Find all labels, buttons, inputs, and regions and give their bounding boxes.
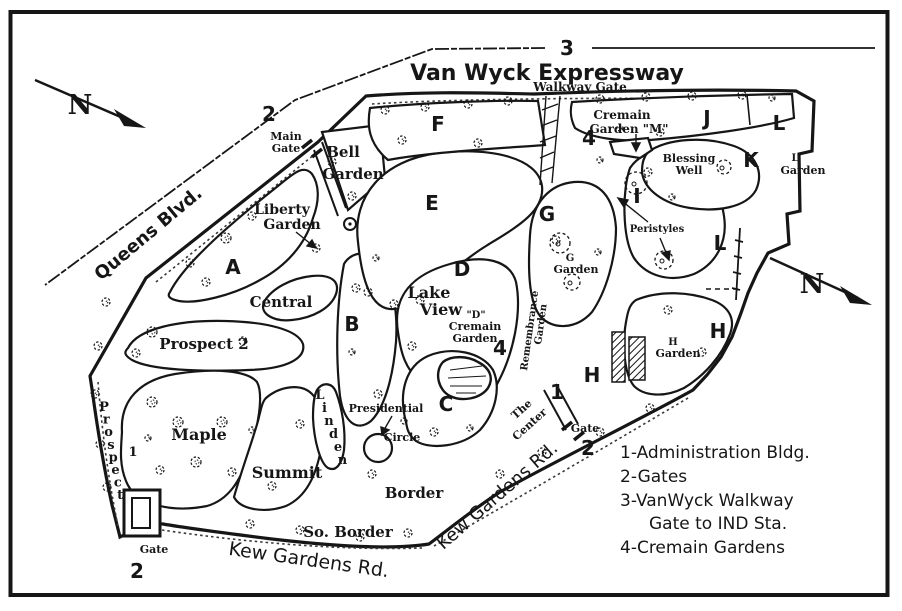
section-c-label: C xyxy=(439,392,454,416)
border-label: Border xyxy=(385,484,445,502)
marker-1-admin: 1 xyxy=(550,380,564,404)
cremain-m-label-line2: Garden "M" xyxy=(589,122,668,136)
so-border-label: So. Border xyxy=(303,523,394,541)
legend-line-5: 4-Cremain Gardens xyxy=(620,538,785,558)
compass-n-top-label: N xyxy=(68,90,93,121)
tree-icon xyxy=(102,298,110,306)
h-garden-label-line2: Garden xyxy=(655,347,700,360)
tree-icon xyxy=(94,342,102,350)
presidential-label-line1: Presidential xyxy=(349,402,424,415)
marker-4-cremain-m: 4 xyxy=(582,126,596,150)
section-k-label: K xyxy=(743,148,760,172)
section-l-ne-label: L xyxy=(773,111,786,135)
section-i-label: I xyxy=(633,184,640,208)
section-l-mid-label: L xyxy=(714,231,727,255)
prospect-2-label: Prospect 2 xyxy=(159,335,248,353)
compass-n-right-label: N xyxy=(800,269,825,300)
marker-2-sw-gate: 2 xyxy=(130,559,144,583)
section-d-label: D xyxy=(454,257,471,281)
marker-1-prospect: 1 xyxy=(128,445,137,460)
l-garden-label-line1: L xyxy=(791,153,798,164)
section-b-label: B xyxy=(344,312,359,336)
main-gate-label-line2: Gate xyxy=(272,142,301,155)
tree-icon-inner xyxy=(106,301,108,303)
gate-sw-label: Gate xyxy=(140,543,169,556)
administration-building xyxy=(612,332,645,382)
legend-line-3: 3-VanWyck Walkway xyxy=(620,491,794,511)
section-e-label: E xyxy=(425,191,439,215)
section-f-label: F xyxy=(431,112,445,136)
cremain-garden-m-area xyxy=(610,138,652,158)
prospect-1-label-ch7: t xyxy=(117,488,123,503)
l-garden-label-line2: Garden xyxy=(780,164,825,177)
marker-3-van-wyck: 3 xyxy=(560,36,574,60)
linden-label-ch5: n xyxy=(338,453,348,468)
section-g-label: G xyxy=(539,202,555,226)
legend-line-2: 2-Gates xyxy=(620,467,687,487)
section-h-w-label: H xyxy=(584,363,601,387)
cemetery-map-page: Van Wyck Expressway3Walkway GateQueens B… xyxy=(0,0,902,611)
central-label: Central xyxy=(250,293,313,311)
section-j-label: J xyxy=(701,106,710,130)
cremain-m-label-line1: Cremain xyxy=(593,108,651,122)
marker-2-e-gate: 2 xyxy=(581,436,595,460)
summit-label: Summit xyxy=(252,463,323,482)
lake-view-label-line2: View xyxy=(419,300,463,319)
g-garden-label-line2: Garden xyxy=(553,263,598,276)
blessing-well-label-line2: Well xyxy=(675,164,703,177)
marker-2-main-gate: 2 xyxy=(262,102,276,126)
bell-garden-label-line1: Bell xyxy=(326,143,360,161)
walkway-gate-label: Walkway Gate xyxy=(532,80,627,94)
main-gate-roundabout-center xyxy=(348,222,351,225)
presidential-label-line2: Circle xyxy=(384,431,421,444)
gate-e-label: Gate xyxy=(571,422,600,435)
bell-garden-label-line2: Garden xyxy=(322,165,383,183)
legend-line-1: 1-Administration Bldg. xyxy=(620,443,810,463)
legend-line-4: Gate to IND Sta. xyxy=(649,514,787,534)
maple-label: Maple xyxy=(171,425,227,444)
d-cremain-label-line3: Garden xyxy=(452,332,497,345)
marker-4-d-cremain: 4 xyxy=(493,336,507,360)
peristyles-label: Peristyles xyxy=(630,224,685,235)
tree-icon-inner xyxy=(98,345,100,347)
cemetery-map: Van Wyck Expressway3Walkway GateQueens B… xyxy=(0,0,902,611)
sw-gate-building xyxy=(124,490,160,536)
liberty-garden-label-line2: Garden xyxy=(263,217,320,233)
liberty-garden-label-line1: Liberty xyxy=(254,202,311,218)
section-h-se-label: H xyxy=(710,319,727,343)
section-a-label: A xyxy=(225,255,241,279)
